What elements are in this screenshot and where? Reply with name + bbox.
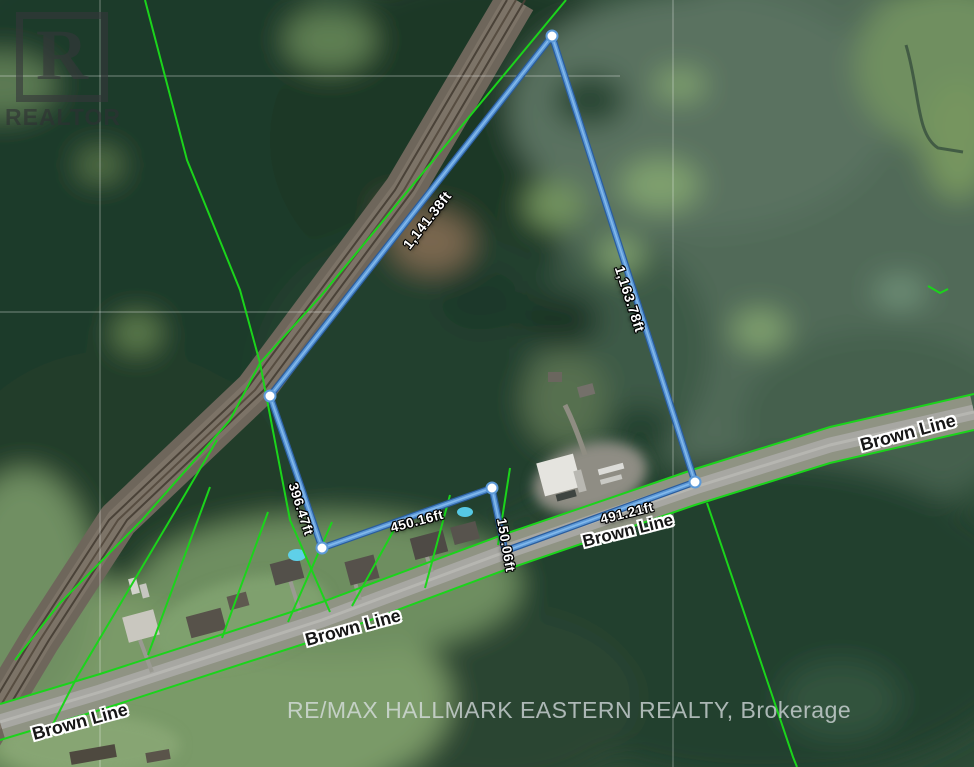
satellite-map: 1,141.38ft 1,163.78ft 396.47ft 450.16ft … — [0, 0, 974, 767]
vertex-dot — [547, 31, 558, 42]
map-canvas — [0, 0, 974, 767]
vertex-dot — [487, 483, 498, 494]
vertex-dot — [265, 391, 276, 402]
vertex-dot — [690, 477, 701, 488]
vertex-dot — [317, 543, 328, 554]
